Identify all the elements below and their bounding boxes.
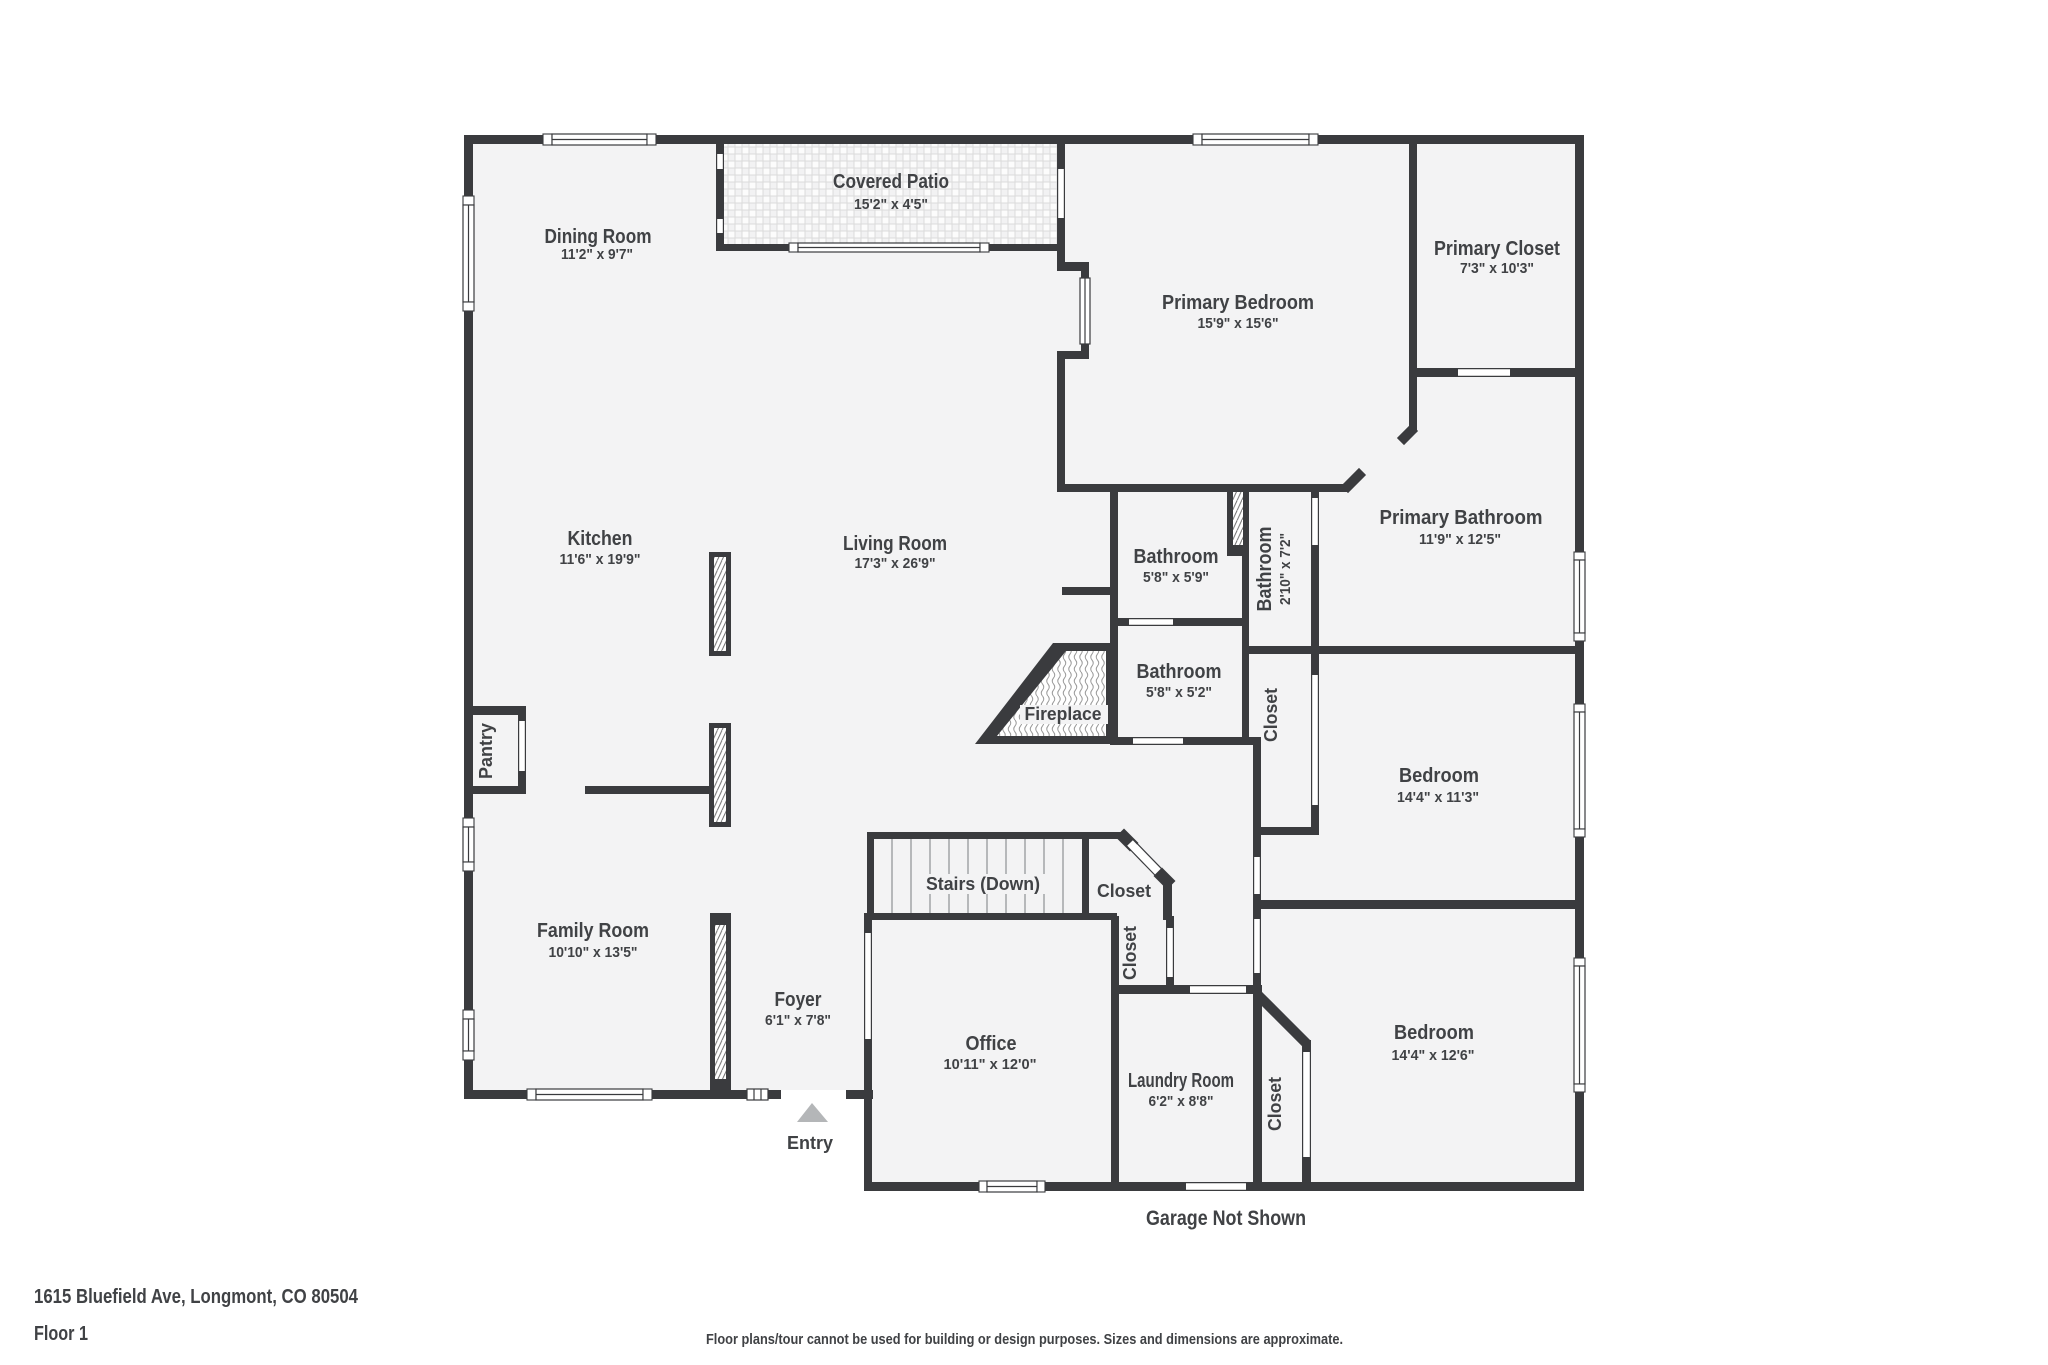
svg-text:11'2" x 9'7": 11'2" x 9'7" (561, 246, 633, 263)
svg-text:Bathroom: Bathroom (1137, 661, 1222, 683)
svg-text:Primary Bedroom: Primary Bedroom (1162, 292, 1314, 314)
svg-text:Bedroom: Bedroom (1394, 1022, 1474, 1044)
svg-text:14'4" x 12'6": 14'4" x 12'6" (1392, 1047, 1475, 1064)
svg-text:Stairs (Down): Stairs (Down) (926, 873, 1040, 894)
svg-text:Entry: Entry (787, 1132, 834, 1153)
svg-text:Kitchen: Kitchen (568, 528, 633, 550)
svg-text:Fireplace: Fireplace (1025, 703, 1102, 724)
svg-text:Garage Not Shown: Garage Not Shown (1146, 1207, 1306, 1230)
svg-text:Living Room: Living Room (843, 533, 947, 555)
svg-text:6'1" x 7'8": 6'1" x 7'8" (765, 1012, 831, 1029)
svg-text:Dining Room: Dining Room (545, 226, 652, 248)
svg-text:Closet: Closet (1264, 1077, 1285, 1131)
svg-text:10'11" x 12'0": 10'11" x 12'0" (944, 1056, 1037, 1073)
svg-text:Floor plans/tour cannot be use: Floor plans/tour cannot be used for buil… (706, 1331, 1343, 1348)
svg-text:7'3" x 10'3": 7'3" x 10'3" (1460, 260, 1534, 277)
svg-text:5'8" x 5'2": 5'8" x 5'2" (1146, 684, 1212, 701)
svg-text:Foyer: Foyer (775, 989, 822, 1011)
svg-text:10'10" x 13'5": 10'10" x 13'5" (549, 944, 638, 961)
svg-text:Bathroom: Bathroom (1254, 527, 1276, 612)
svg-text:Closet: Closet (1260, 688, 1281, 742)
svg-text:15'2" x 4'5": 15'2" x 4'5" (854, 196, 928, 213)
svg-text:Closet: Closet (1119, 926, 1140, 980)
svg-text:1615 Bluefield Ave, Longmont,: 1615 Bluefield Ave, Longmont, CO 80504 (34, 1286, 359, 1308)
svg-text:Covered Patio: Covered Patio (833, 171, 949, 193)
svg-text:17'3" x 26'9": 17'3" x 26'9" (855, 555, 936, 572)
svg-text:Bathroom: Bathroom (1134, 546, 1219, 568)
svg-text:Closet: Closet (1097, 880, 1151, 901)
svg-text:Primary Bathroom: Primary Bathroom (1380, 507, 1543, 529)
svg-text:6'2" x 8'8": 6'2" x 8'8" (1149, 1093, 1214, 1110)
svg-text:Primary Closet: Primary Closet (1434, 238, 1560, 260)
svg-text:Laundry Room: Laundry Room (1128, 1070, 1234, 1092)
svg-text:Bedroom: Bedroom (1399, 765, 1479, 787)
svg-text:11'6" x 19'9": 11'6" x 19'9" (560, 551, 641, 568)
svg-text:11'9" x 12'5": 11'9" x 12'5" (1419, 531, 1501, 548)
svg-text:2'10" x 7'2": 2'10" x 7'2" (1277, 533, 1294, 605)
svg-text:Floor 1: Floor 1 (34, 1323, 88, 1345)
svg-text:14'4" x 11'3": 14'4" x 11'3" (1397, 789, 1479, 806)
svg-text:Family Room: Family Room (537, 920, 649, 942)
svg-text:5'8" x 5'9": 5'8" x 5'9" (1143, 569, 1209, 586)
svg-text:Pantry: Pantry (475, 722, 496, 779)
svg-text:Office: Office (966, 1033, 1017, 1055)
svg-text:15'9" x 15'6": 15'9" x 15'6" (1198, 315, 1279, 332)
